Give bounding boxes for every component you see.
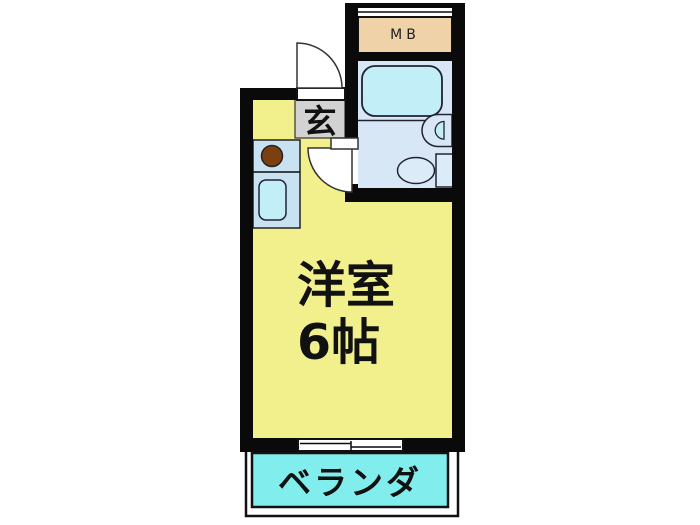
- main-room-label: 洋室 6帖: [297, 258, 395, 372]
- floor-plan-canvas: MB 玄 洋室 6帖 ベランダ: [0, 0, 700, 525]
- wall-top-left: [240, 88, 297, 100]
- meter-box-label: MB: [358, 17, 452, 53]
- wall-meterbox-bathroom: [345, 52, 452, 61]
- toilet-tank: [436, 154, 453, 187]
- wall-bathroom-left-upper: [345, 3, 358, 142]
- entrance-door-swing-arc: [297, 43, 342, 88]
- wall-top-cap: [345, 3, 465, 8]
- bathtub: [362, 66, 442, 116]
- stove-burner-icon: [262, 146, 283, 167]
- wall-right: [452, 3, 465, 452]
- toilet-bowl: [398, 158, 435, 184]
- main-room-label-line2: 6帖: [297, 315, 395, 372]
- kitchen-sink: [259, 180, 286, 220]
- main-room-label-line1: 洋室: [297, 258, 395, 315]
- wall-bathroom-bottom: [345, 188, 465, 202]
- veranda-label: ベランダ: [252, 453, 448, 507]
- entrance-label: 玄: [295, 99, 345, 138]
- wall-left: [240, 88, 253, 452]
